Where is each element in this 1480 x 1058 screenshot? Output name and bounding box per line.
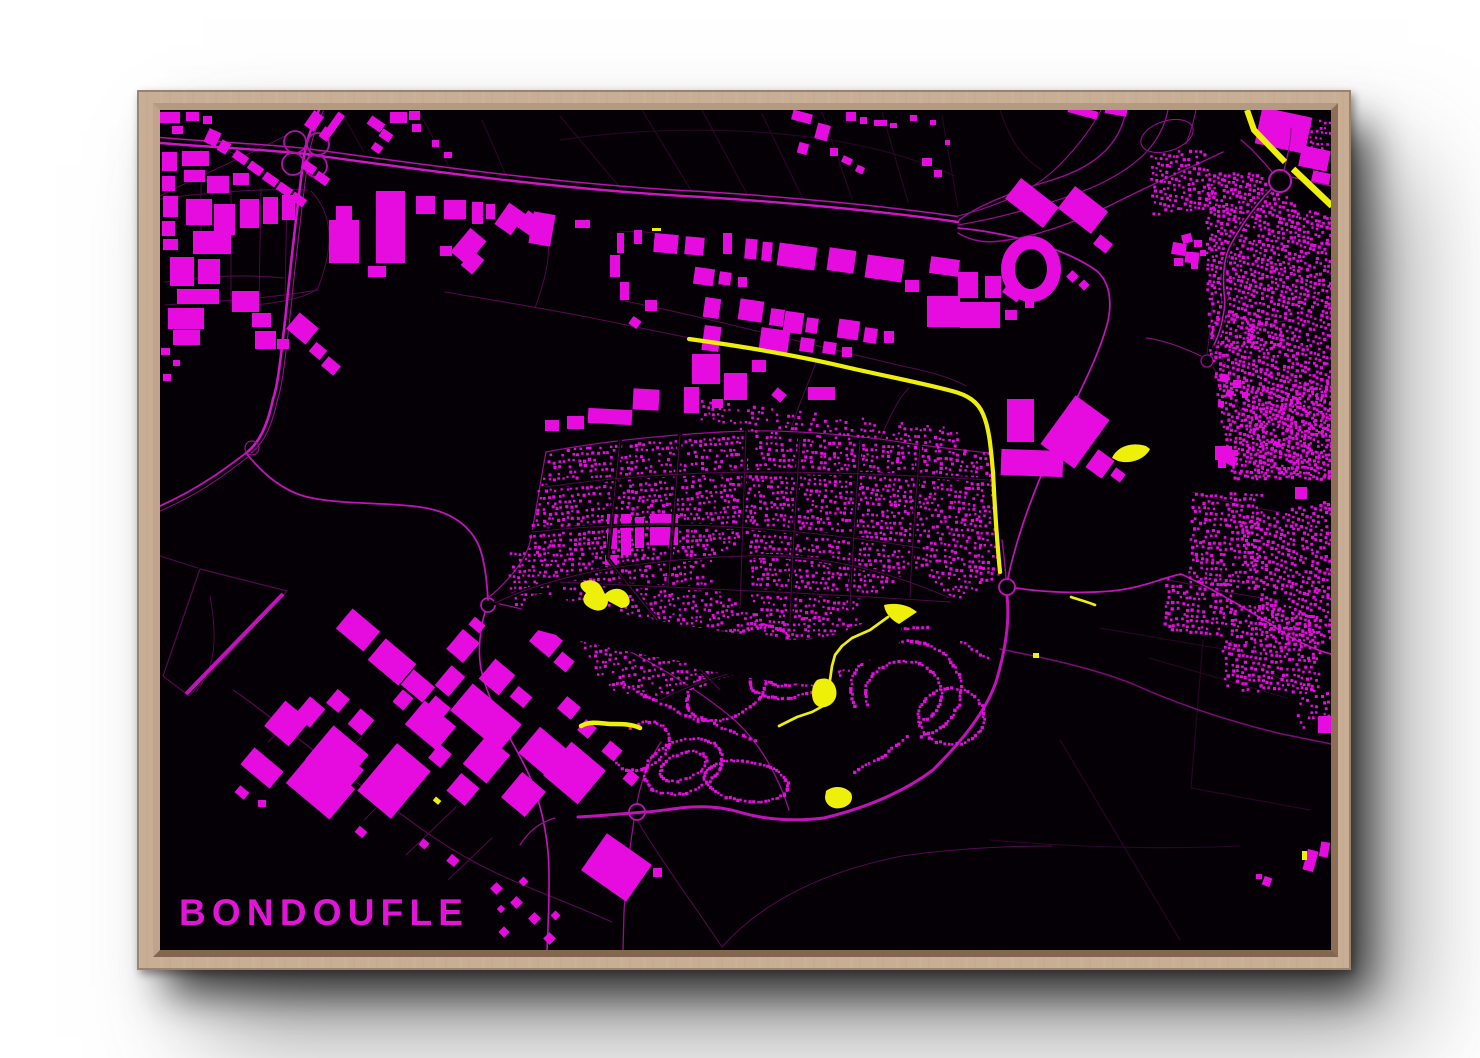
svg-text:BONDOUFLE: BONDOUFLE (179, 892, 469, 933)
